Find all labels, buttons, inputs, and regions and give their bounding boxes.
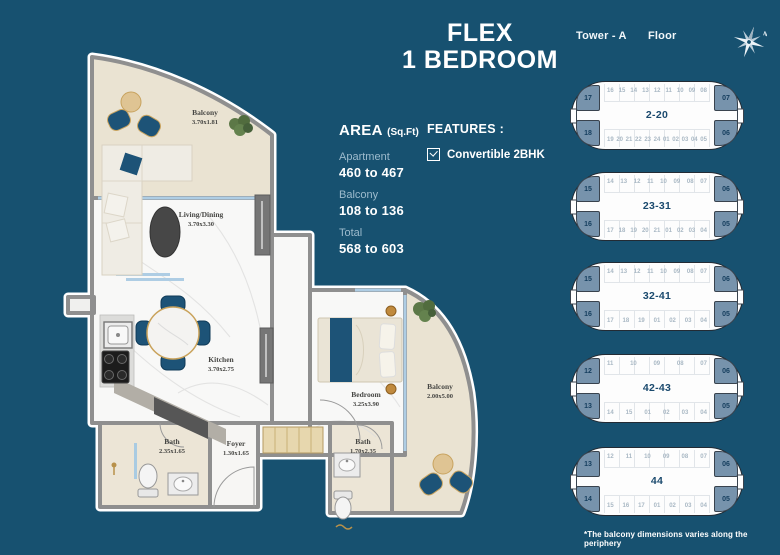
tower-keyplan: 1110090807 141501020304 12 13 06 05 42-4… xyxy=(571,354,743,423)
brochure-page: Balcony 3.70x1.81 Living/Dining 3.70x3.3… xyxy=(0,0,780,555)
room-label-balcony-right: Balcony xyxy=(427,382,453,391)
tower-keyplan: 121110090807 15161701020304 13 14 06 05 … xyxy=(571,447,743,516)
room-dim-living: 3.70x3.30 xyxy=(188,221,214,228)
page-title: FLEX 1 BEDROOM xyxy=(390,20,570,74)
bed xyxy=(318,306,402,394)
stove xyxy=(102,351,129,383)
area-unit: (Sq.Ft) xyxy=(387,127,419,138)
room-label-bath-right: Bath xyxy=(355,437,371,446)
tower-keyplan: 161514131211100908 192021222324010203040… xyxy=(571,81,743,150)
floor-range-label: 42-43 xyxy=(572,354,742,421)
floor-plan: Balcony 3.70x1.81 Living/Dining 3.70x3.3… xyxy=(58,45,563,530)
room-dim-bath-left: 2.35x1.65 xyxy=(159,448,186,455)
room-label-kitchen: Kitchen xyxy=(208,355,234,364)
room-dim-balcony-top: 3.70x1.81 xyxy=(192,119,218,126)
room-dim-foyer: 1.30x1.65 xyxy=(223,450,250,457)
tower-keyplan: 1413121110090807 171819202101020304 15 1… xyxy=(571,172,743,241)
tower-label: Tower - A xyxy=(576,30,627,42)
features-heading: FEATURES : xyxy=(427,122,545,136)
feature-label: Convertible 2BHK xyxy=(447,149,545,161)
area-row-value: 460 to 467 xyxy=(339,165,424,180)
room-dim-bath-right: 1.70x2.35 xyxy=(350,448,377,455)
title-line-2: 1 BEDROOM xyxy=(390,47,570,74)
window-sill xyxy=(126,278,184,281)
room-dim-kitchen: 3.70x2.75 xyxy=(208,366,235,373)
feature-item: Convertible 2BHK xyxy=(427,148,545,161)
area-row-label: Balcony xyxy=(339,189,424,201)
area-row-value: 568 to 603 xyxy=(339,241,424,256)
room-label-living: Living/Dining xyxy=(179,210,224,219)
balcony-footnote: *The balcony dimensions varies along the… xyxy=(584,530,780,548)
floor-column-label: Floor xyxy=(648,30,677,42)
area-section: AREA (Sq.Ft) Apartment 460 to 467 Balcon… xyxy=(339,122,424,256)
floor-range-label: 44 xyxy=(572,447,742,514)
room-dim-balcony-right: 2.00x5.00 xyxy=(427,393,453,400)
wardrobe xyxy=(263,427,323,453)
svg-text:N: N xyxy=(762,31,767,38)
coffee-table xyxy=(150,207,180,257)
features-section: FEATURES : Convertible 2BHK xyxy=(427,122,545,161)
title-line-1: FLEX xyxy=(390,20,570,47)
area-row-value: 108 to 136 xyxy=(339,203,424,218)
room-dim-bedroom: 3.25x3.90 xyxy=(353,401,379,408)
tower-keyplan: 1413121110090807 17181901020304 15 16 06… xyxy=(571,262,743,331)
room-label-bath-left: Bath xyxy=(164,437,180,446)
room-label-balcony-top: Balcony xyxy=(192,108,218,117)
area-row-label: Total xyxy=(339,227,424,239)
checkbox-checked-icon xyxy=(427,148,440,161)
floor-range-label: 2-20 xyxy=(572,81,742,148)
compass-icon: N xyxy=(731,24,767,60)
floor-range-label: 32-41 xyxy=(572,262,742,329)
area-heading-text: AREA xyxy=(339,122,383,139)
area-heading: AREA (Sq.Ft) xyxy=(339,122,424,140)
floor-range-label: 23-31 xyxy=(572,172,742,239)
area-row-label: Apartment xyxy=(339,151,424,163)
kitchen-sink xyxy=(104,322,132,348)
room-label-bedroom: Bedroom xyxy=(351,390,381,399)
room-label-foyer: Foyer xyxy=(227,439,246,448)
